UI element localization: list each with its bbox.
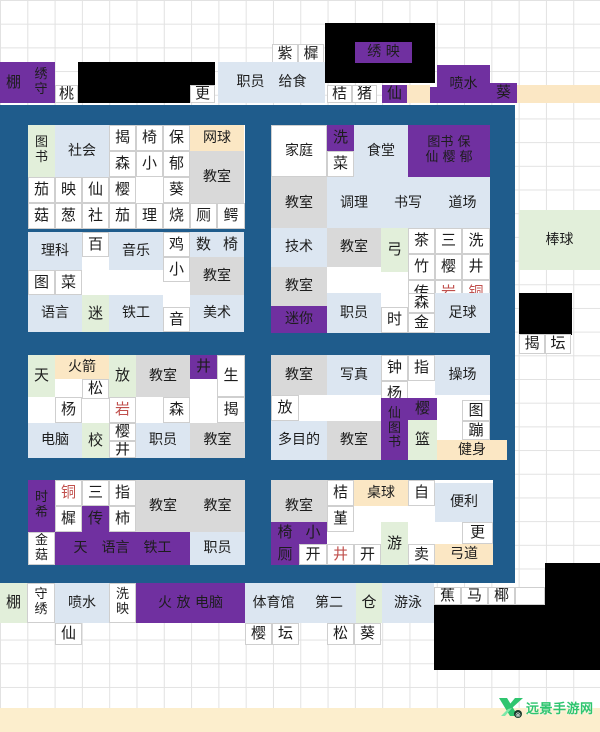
map-cell: 椰 — [488, 587, 515, 605]
map-cell: 坛 — [545, 334, 571, 354]
map-cell: 蹦 — [462, 421, 490, 440]
map-cell: 椅 — [136, 125, 163, 151]
map-cell: 便利 — [435, 483, 493, 522]
map-cell: 指 — [408, 355, 435, 381]
map-cell: 职员 — [190, 532, 245, 565]
map-cell: 茄 — [28, 177, 55, 203]
map-cell: 教室 — [271, 177, 327, 229]
map-cell: 技术 — [271, 228, 327, 267]
map-cell: 喷水 — [437, 65, 490, 103]
map-cell: 传 — [82, 506, 109, 532]
map-cell: 道场 — [435, 177, 490, 229]
map-cell: 教室 — [271, 267, 327, 306]
map-cell: 岩 — [109, 397, 136, 423]
map-cell: 映 — [55, 177, 82, 203]
map-cell: 鸡 — [163, 232, 190, 257]
map-cell: 竹 — [408, 254, 435, 280]
map-cell: 弓道 — [435, 544, 493, 565]
map-cell: 教室 — [190, 257, 244, 295]
map-cell: 写真 — [327, 355, 381, 395]
redacted-black-box — [519, 293, 572, 335]
map-cell: 指 — [109, 480, 136, 506]
map-cell: 樱 — [245, 623, 272, 645]
map-cell: 洗 映 — [109, 583, 136, 623]
map-cell: 火 放 电脑 — [136, 583, 245, 623]
map-cell: 迷你 — [271, 306, 327, 333]
map-cell: 游 — [381, 522, 408, 565]
map-cell: 保 — [163, 125, 190, 151]
map-cell: 职员 — [327, 293, 381, 333]
map-cell: 井 — [109, 441, 136, 458]
map-cell: 游泳 — [382, 583, 434, 623]
map-cell: 多目的 — [271, 421, 327, 460]
map-cell: 守 绣 — [27, 583, 55, 623]
map-cell: 葵 — [163, 177, 190, 203]
map-cell: 时 — [381, 307, 408, 333]
map-cell: 篮 — [408, 420, 437, 460]
map-cell: 时 希 — [28, 480, 55, 532]
map-cell: 书写 — [381, 177, 435, 229]
map-cell: 理科 — [28, 232, 82, 270]
map-cell: 教室 — [327, 228, 381, 267]
map-cell: 语言 — [28, 295, 82, 332]
map-cell: 教室 — [136, 355, 190, 397]
map-cell: 森 — [408, 293, 435, 313]
map-cell: 桔 — [327, 85, 352, 103]
map-cell: 教室 — [190, 480, 245, 532]
map-cell: 更 — [190, 85, 215, 103]
map-cell: 火箭 — [55, 355, 109, 379]
map-cell: 森 — [109, 151, 136, 177]
map-cell: 烧 — [163, 203, 190, 229]
map-cell: 理 — [136, 203, 163, 229]
map-cell: 小 — [136, 151, 163, 177]
map-cell: 樨 — [298, 44, 324, 64]
map-cell: 樱 — [109, 423, 136, 441]
map-cell: 厕 — [271, 544, 299, 565]
map-cell: 百 — [82, 232, 109, 257]
map-cell: 网球 — [190, 125, 244, 151]
map-cell: 揭 — [217, 397, 245, 423]
watermark-logo-icon: ⊗ — [498, 695, 524, 719]
map-cell: 天 — [28, 355, 55, 397]
map-cell: 猪 — [352, 85, 377, 103]
map-cell: 郁 — [163, 151, 190, 177]
map-cell: 樨 — [55, 506, 82, 532]
map-cell: 洗 — [462, 228, 490, 254]
map-cell: 葵 — [354, 623, 381, 645]
map-cell: 社会 — [55, 125, 109, 177]
map-cell: 茶 — [408, 228, 435, 254]
map-cell — [407, 85, 430, 103]
map-cell: 菇 — [28, 203, 55, 229]
map-cell: 卖 — [408, 544, 435, 565]
map-cell: 棚 — [0, 583, 27, 623]
map-cell: 钟 — [381, 355, 408, 381]
map-cell: 仙 — [382, 85, 407, 103]
map-cell: 桃 — [55, 85, 78, 103]
redacted-black-box — [434, 605, 600, 670]
map-cell: 职员 给食 — [218, 62, 325, 103]
redacted-black-box — [545, 563, 600, 605]
map-cell: 洗 — [327, 125, 354, 151]
map-cell: 鳄 — [217, 203, 245, 229]
map-cell: 迷 — [82, 295, 109, 332]
map-cell: 操场 — [435, 355, 490, 395]
map-cell: 足球 — [435, 293, 490, 333]
map-cell: 调理 — [327, 177, 381, 229]
map-cell: 棒球 — [519, 210, 600, 270]
map-cell: 仙 — [55, 623, 82, 645]
map-cell: 桔 — [327, 480, 354, 506]
map-cell: 社 — [82, 203, 109, 229]
map-cell: 铁工 — [109, 295, 163, 332]
map-cell: 电脑 — [28, 423, 82, 458]
map-cell: 喷水 — [55, 583, 109, 623]
map-cell: 森 — [163, 397, 190, 423]
map-cell: 自 — [408, 480, 435, 506]
map-cell: 樱 — [408, 398, 437, 420]
map-cell: 弓 — [381, 228, 408, 272]
map-cell: 音乐 — [109, 232, 163, 270]
map-cell: 仙 — [82, 177, 109, 203]
map-cell: 椅 — [217, 232, 244, 257]
map-cell: 杨 — [55, 397, 82, 423]
map-cell: 生 — [217, 355, 245, 397]
map-cell: 松 — [82, 379, 109, 399]
map-cell: 数 — [190, 232, 217, 257]
map-cell: 桌球 — [354, 480, 408, 506]
map-cell: 井 — [190, 355, 217, 379]
map-cell: 铜 — [55, 480, 82, 506]
map-cell: 职员 — [136, 423, 190, 458]
map-cell: 茄 — [109, 203, 136, 229]
map-cell: 金 — [408, 313, 435, 333]
map-cell: 开 — [299, 544, 327, 565]
map-cell: 井 — [462, 254, 490, 280]
map-cell: 揭 — [109, 125, 136, 151]
map-cell: 菜 — [55, 270, 82, 295]
map-cell: 三 — [82, 480, 109, 506]
map-cell: 小 — [163, 257, 190, 282]
map-cell: 音 — [163, 307, 190, 332]
watermark-text: 远景手游网 — [526, 698, 594, 717]
map-cell: 图 — [462, 400, 490, 421]
map-cell: 金 菇 — [28, 532, 55, 565]
map-cell: 绣 守 — [27, 62, 55, 103]
map-cell: 校 — [82, 423, 109, 458]
site-watermark: ⊗ 远景手游网 — [498, 694, 594, 720]
map-cell: 椅 — [271, 522, 299, 544]
map-cell: 仓 — [356, 583, 382, 623]
map-cell: 紫 — [272, 44, 298, 64]
map-cell: 三 — [435, 228, 462, 254]
map-cell: 图 — [28, 270, 55, 295]
map-cell: 菜 — [327, 151, 354, 177]
map-cell: 更 — [462, 522, 493, 544]
map-cell: 葱 — [55, 203, 82, 229]
map-cell: 樱 — [435, 254, 462, 280]
map-cell: 堇 — [327, 506, 354, 532]
map-cell: 小 — [299, 522, 327, 544]
svg-text:⊗: ⊗ — [515, 711, 521, 719]
map-cell: 揭 — [519, 334, 545, 354]
map-cell: 棚 — [0, 62, 27, 103]
map-cell: 厕 — [190, 203, 217, 229]
map-cell: 教室 — [190, 423, 245, 458]
map-cell: 柿 — [109, 506, 136, 532]
map-cell: 绣 映 — [355, 42, 412, 63]
map-cell: 体育馆 — [245, 583, 302, 623]
map-cell — [517, 85, 600, 103]
map-cell: 天 语言 铁工 — [55, 532, 190, 565]
map-cell: 松 — [327, 623, 354, 645]
map-cell: 教室 — [136, 480, 190, 532]
campus-map-stage: 紫樨绣 映棚绣 守桃更职员 给食桔猪仙喷水葵棒球揭坛图 书社会揭椅保网球森小郁教… — [0, 0, 600, 732]
map-cell: 食堂 — [354, 125, 408, 177]
map-cell: 仙 图 书 — [381, 398, 408, 460]
map-cell: 家庭 — [271, 125, 327, 177]
map-cell — [515, 587, 545, 605]
map-cell: 葵 — [490, 83, 517, 103]
map-cell: 蕉 — [434, 587, 461, 605]
map-cell: 图 书 — [28, 125, 55, 177]
map-cell: 教室 — [190, 151, 244, 203]
map-cell: 放 — [109, 355, 136, 397]
map-cell: 教室 — [327, 421, 381, 460]
map-cell: 开 — [354, 544, 381, 565]
map-cell: 井 — [327, 544, 354, 565]
map-cell: 图书 保 仙 樱 郁 — [408, 125, 490, 177]
map-cell: 第二 — [302, 583, 356, 623]
map-cell: 坛 — [272, 623, 299, 645]
map-cell: 放 — [271, 395, 299, 421]
map-cell: 美术 — [190, 295, 244, 332]
map-cell: 樱 — [109, 177, 136, 203]
map-cell: 马 — [461, 587, 488, 605]
map-cell: 健身 — [437, 440, 507, 460]
map-cell: 教室 — [271, 355, 327, 395]
